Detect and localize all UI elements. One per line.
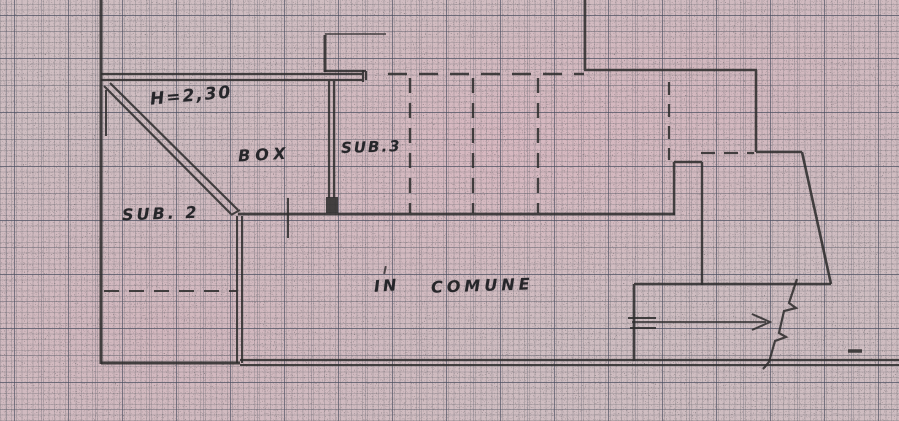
sub3-room-label: SUB.3	[341, 137, 402, 157]
box-room-label: BOX	[238, 144, 291, 166]
floor-plan-scan: H=2,30 BOX SUB.3 SUB. 2 IN COMUNE	[0, 0, 899, 421]
in-comune-label-in: IN	[373, 275, 400, 296]
sub2-room-label: SUB. 2	[122, 203, 200, 225]
in-comune-label-comune: COMUNE	[431, 274, 534, 297]
